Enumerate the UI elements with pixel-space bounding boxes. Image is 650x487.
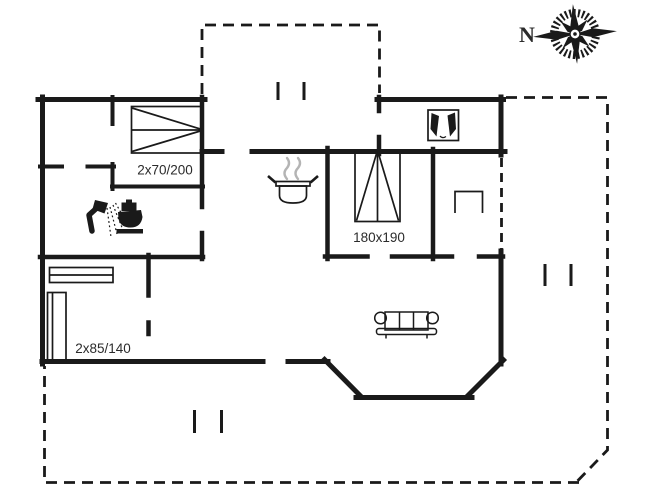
floor-plan: N 2x70/200 180x190 2x85/140: [0, 0, 650, 487]
bed-size-label-2x70-200: 2x70/200: [137, 163, 193, 178]
steam-icon: [285, 158, 301, 179]
compass-north-label: N: [519, 22, 535, 47]
floor-plan-canvas: N 2x70/200 180x190 2x85/140: [0, 0, 650, 487]
sofa-icon: [375, 312, 439, 339]
bed-size-label-180x190: 180x190: [353, 230, 405, 245]
closet-icon: [50, 268, 114, 283]
double-bed-180x190-icon: [355, 151, 400, 222]
bunk-bed-icon: [48, 293, 67, 362]
compass-rose-icon: [531, 1, 619, 67]
terrace-top: [202, 25, 380, 94]
toilet-icon: [117, 200, 144, 234]
terrace-right: [506, 98, 608, 482]
wardrobe-icon: [431, 113, 457, 138]
terrace-bottom: [45, 366, 580, 483]
terrace-step-marks: [195, 82, 572, 433]
stove-niche-icon: [455, 192, 483, 214]
cooking-pot-icon: [268, 176, 318, 203]
bay-diagonal-left: [325, 360, 360, 396]
bed-size-label-2x85-140: 2x85/140: [75, 341, 131, 356]
double-bed-icon: [132, 107, 203, 154]
bay-diagonal-right: [469, 360, 504, 395]
furniture: [48, 107, 483, 362]
